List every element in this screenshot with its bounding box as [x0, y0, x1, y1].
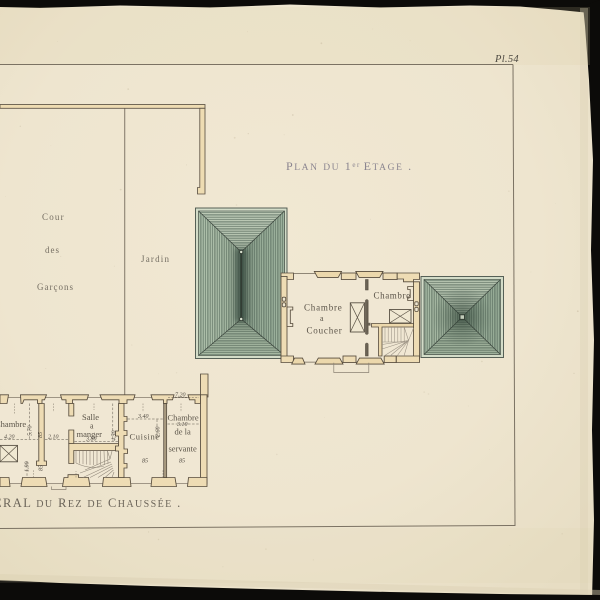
svg-text:85: 85: [39, 465, 45, 471]
svg-text:servante: servante: [169, 444, 198, 454]
svg-text:2.10: 2.10: [48, 435, 59, 441]
svg-text:7.20: 7.20: [175, 393, 186, 399]
svg-text:de la: de la: [175, 427, 192, 437]
svg-text:Chambre: Chambre: [374, 291, 411, 301]
svg-text:ÉRAL DU REZ DE CHAUSSÉE .: ÉRAL DU REZ DE CHAUSSÉE .: [0, 496, 182, 510]
svg-text:85: 85: [38, 432, 44, 438]
svg-text:a: a: [320, 314, 324, 323]
svg-text:1.90: 1.90: [25, 462, 31, 473]
svg-text:85: 85: [142, 459, 148, 465]
svg-text:Chambre: Chambre: [304, 303, 343, 313]
svg-text:2.60: 2.60: [156, 427, 162, 438]
svg-text:Cour: Cour: [42, 212, 65, 222]
svg-text:5.70: 5.70: [28, 426, 34, 437]
svg-text:3.10: 3.10: [176, 422, 188, 428]
svg-text:85: 85: [179, 459, 185, 465]
svg-text:Coucher: Coucher: [307, 326, 343, 336]
svg-text:4.20: 4.20: [4, 434, 15, 441]
svg-text:Pl.54: Pl.54: [494, 54, 519, 65]
svg-text:Salle: Salle: [82, 412, 99, 422]
svg-text:3.80: 3.80: [85, 437, 97, 443]
svg-text:4.50: 4.50: [111, 431, 118, 442]
svg-text:Chambre: Chambre: [168, 413, 199, 423]
svg-text:3.40: 3.40: [137, 413, 149, 420]
svg-text:des: des: [45, 245, 60, 255]
svg-text:Garçons: Garçons: [37, 282, 74, 292]
svg-text:Jardin: Jardin: [141, 254, 170, 264]
svg-text:Chambre: Chambre: [0, 419, 26, 429]
